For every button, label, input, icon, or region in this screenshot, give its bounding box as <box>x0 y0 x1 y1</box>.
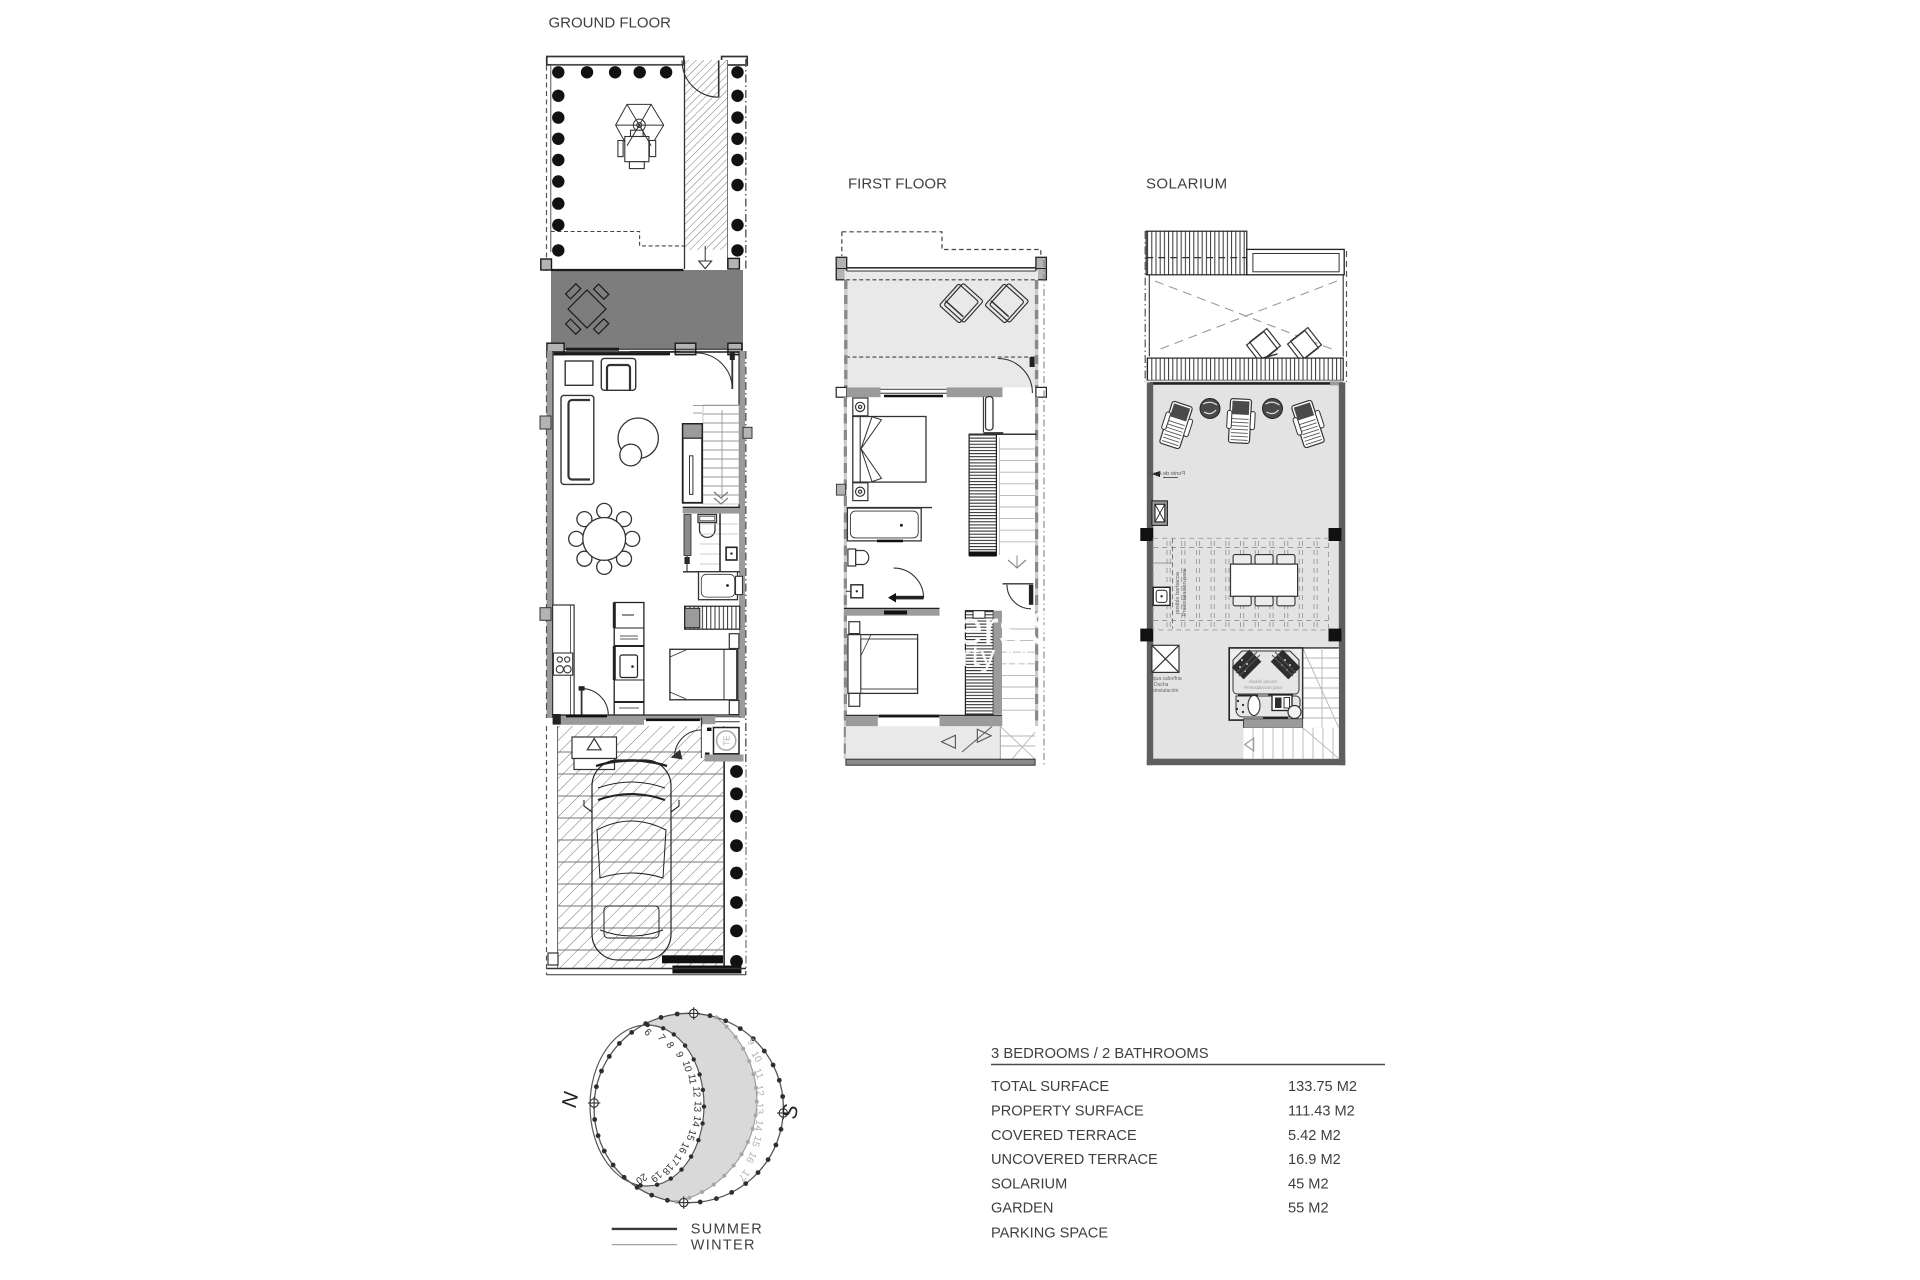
svg-text:45 M2: 45 M2 <box>1288 1177 1329 1193</box>
svg-text:Preinstalación para: Preinstalación para <box>1182 568 1188 616</box>
svg-text:16.9 M2: 16.9 M2 <box>1288 1152 1341 1168</box>
svg-text:GARDEN: GARDEN <box>991 1201 1053 1217</box>
svg-text:12: 12 <box>690 1086 701 1098</box>
svg-text:SOLARIUM: SOLARIUM <box>991 1177 1067 1193</box>
svg-text:5.42 M2: 5.42 M2 <box>1288 1128 1341 1144</box>
svg-text:Punto de Agua: Punto de Agua <box>1148 471 1185 477</box>
svg-text:13: 13 <box>754 1103 765 1115</box>
svg-text:COVERED TERRACE: COVERED TERRACE <box>991 1128 1137 1144</box>
svg-text:PROPERTY SURFACE: PROPERTY SURFACE <box>991 1104 1144 1120</box>
svg-text:PARKING SPACE: PARKING SPACE <box>991 1226 1108 1242</box>
svg-text:FIRST FLOOR: FIRST FLOOR <box>848 176 947 193</box>
svg-text:13: 13 <box>691 1100 703 1112</box>
svg-text:Preinstalación: Preinstalación <box>1147 688 1179 694</box>
svg-text:133.75 M2: 133.75 M2 <box>1288 1079 1357 1095</box>
svg-text:Preinstalación para: Preinstalación para <box>1244 685 1282 690</box>
svg-text:WINTER: WINTER <box>691 1238 756 1254</box>
svg-text:e: e <box>1044 638 1061 673</box>
svg-text:GROUND FLOOR: GROUND FLOOR <box>549 14 672 31</box>
svg-text:rty M: rty M <box>961 638 1030 673</box>
svg-text:SOLARIUM: SOLARIUM <box>1146 176 1228 193</box>
svg-text:55 M2: 55 M2 <box>1288 1201 1329 1217</box>
svg-text:double jacuzzi: double jacuzzi <box>1249 679 1277 684</box>
svg-text:11: 11 <box>685 1073 698 1085</box>
svg-text:TE: TE <box>723 735 732 745</box>
svg-text:UNCOVERED TERRACE: UNCOVERED TERRACE <box>991 1152 1158 1168</box>
svg-text:TOTAL SURFACE: TOTAL SURFACE <box>991 1079 1109 1095</box>
svg-text:posible barbacoa: posible barbacoa <box>1175 571 1181 614</box>
svg-text:SUMMER: SUMMER <box>691 1222 763 1238</box>
svg-text:111.43 M2: 111.43 M2 <box>1288 1104 1355 1120</box>
svg-text:3 BEDROOMS / 2 BATHROOMS: 3 BEDROOMS / 2 BATHROOMS <box>991 1046 1209 1062</box>
